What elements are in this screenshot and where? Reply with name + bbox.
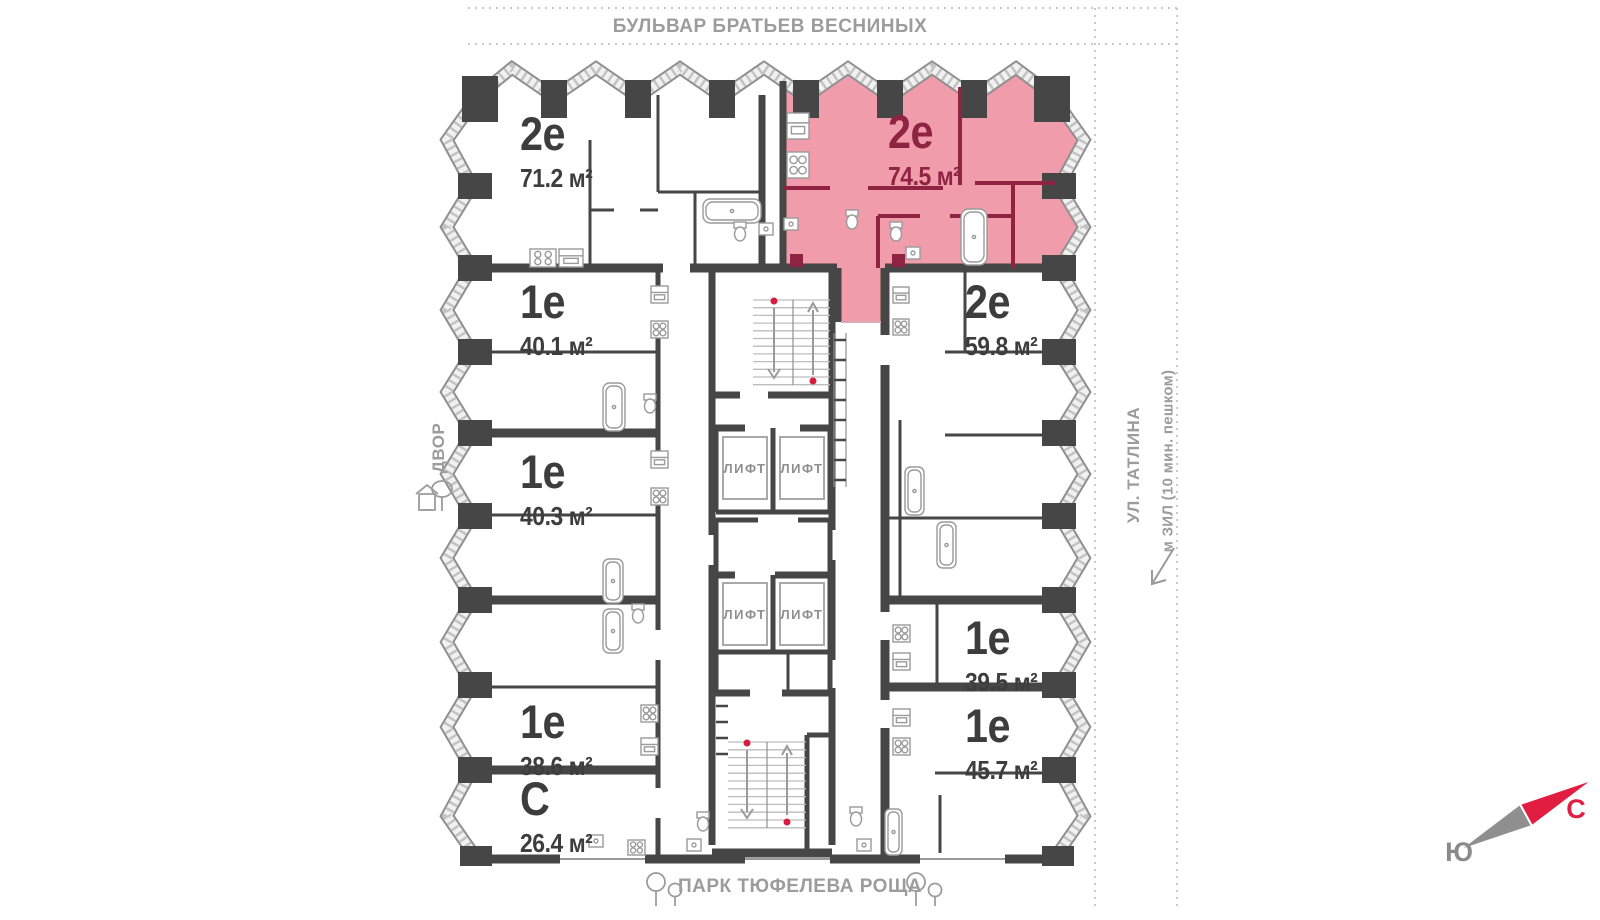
street-label-top: БУЛЬВАР БРАТЬЕВ ВЕСНИНЫХ xyxy=(613,16,928,38)
toilet-icon xyxy=(846,210,858,229)
apartment-label-2e-59[interactable]: 2е 59.8 м² xyxy=(965,278,1037,362)
apartment-type: С xyxy=(520,775,592,822)
fridge-icon xyxy=(893,709,910,726)
apartment-type: 1е xyxy=(520,698,592,745)
elevator-label: ЛИФТ xyxy=(780,461,823,476)
fridge-icon xyxy=(787,113,809,139)
elevator-label: ЛИФТ xyxy=(723,461,766,476)
toilet-icon xyxy=(644,394,656,413)
apartment-label-1e-40-1[interactable]: 1е 40.1 м² xyxy=(520,278,592,362)
metro-walk-arrow-icon xyxy=(1152,548,1174,584)
apartment-area: 45.7 м² xyxy=(965,755,1037,786)
fridge-icon xyxy=(893,653,910,670)
apartment-label-c-26[interactable]: С 26.4 м² xyxy=(520,775,592,859)
compass-south-label: Ю xyxy=(1445,837,1473,867)
stove-icon xyxy=(651,321,668,338)
apartment-type: 1е xyxy=(520,278,592,325)
compass: С Ю xyxy=(1445,779,1594,867)
sink-icon xyxy=(857,839,871,851)
stove-icon xyxy=(893,319,909,335)
apartment-label-2e-74-selected[interactable]: 2е 74.5 м² xyxy=(888,108,960,192)
street-label-right: УЛ. ТАТЛИНА xyxy=(1124,407,1144,523)
apartment-label-1e-40-3[interactable]: 1е 40.3 м² xyxy=(520,448,592,532)
bathtub-icon xyxy=(937,522,956,568)
sink-icon xyxy=(906,247,920,259)
staircase-upper xyxy=(753,298,830,386)
compass-north-label: С xyxy=(1566,794,1586,824)
sink-icon xyxy=(784,218,798,230)
elevator-label: ЛИФТ xyxy=(780,607,823,622)
apartment-area: 74.5 м² xyxy=(888,161,960,192)
sink-icon xyxy=(759,223,773,235)
fridge-icon xyxy=(651,286,668,303)
bathtub-icon xyxy=(603,383,625,431)
stove-icon xyxy=(628,840,645,855)
sink-icon xyxy=(687,839,701,851)
metro-label-right: м ЗИЛ (10 мин. пешком) xyxy=(1160,370,1177,553)
stove-icon xyxy=(651,488,668,505)
toilet-icon xyxy=(697,812,709,831)
floorplan-svg: ЛИФТ ЛИФТ ЛИФТ ЛИФТ С Ю xyxy=(0,0,1600,920)
bathtub-icon xyxy=(603,559,623,603)
apartment-label-2e-71[interactable]: 2е 71.2 м² xyxy=(520,110,592,194)
staircase-lower xyxy=(728,740,806,829)
apartment-area: 71.2 м² xyxy=(520,163,592,194)
bathtub-icon xyxy=(885,809,902,855)
toilet-icon xyxy=(890,222,902,241)
fridge-icon xyxy=(559,249,583,267)
stove-icon xyxy=(893,738,910,755)
apartment-type: 1е xyxy=(520,448,592,495)
stove-icon xyxy=(641,705,658,722)
fridge-icon xyxy=(893,287,909,303)
apartment-label-1e-45[interactable]: 1е 45.7 м² xyxy=(965,702,1037,786)
apartment-type: 1е xyxy=(965,702,1037,749)
apartment-area: 40.3 м² xyxy=(520,501,592,532)
toilet-icon xyxy=(734,222,746,241)
apartment-area: 26.4 м² xyxy=(520,828,592,859)
apartment-type: 2е xyxy=(520,110,592,157)
toilet-icon xyxy=(850,807,862,826)
apartment-area: 39.5 м² xyxy=(965,667,1037,698)
apartment-area: 59.8 м² xyxy=(965,331,1037,362)
fridge-icon xyxy=(651,451,668,468)
bathtub-icon xyxy=(703,199,761,223)
park-label-bottom: ПАРК ТЮФЕЛЕВА РОЩА xyxy=(678,876,922,898)
apartment-type: 2е xyxy=(965,278,1037,325)
apartment-area: 40.1 м² xyxy=(520,331,592,362)
fridge-icon xyxy=(641,738,658,755)
apartment-label-1e-38[interactable]: 1е 38.6 м² xyxy=(520,698,592,782)
apartment-label-1e-39[interactable]: 1е 39.5 м² xyxy=(965,614,1037,698)
apartment-type: 2е xyxy=(888,108,960,155)
bathtub-icon xyxy=(961,209,987,265)
apartment-type: 1е xyxy=(965,614,1037,661)
stove-icon xyxy=(893,625,910,642)
stove-icon xyxy=(787,152,809,178)
stove-icon xyxy=(530,249,556,267)
elevator-label: ЛИФТ xyxy=(723,607,766,622)
yard-label-left: ДВОР xyxy=(429,423,449,474)
bathtub-icon xyxy=(905,467,924,515)
bathtub-icon xyxy=(603,609,623,653)
toilet-icon xyxy=(632,604,644,623)
floorplan-canvas: ЛИФТ ЛИФТ ЛИФТ ЛИФТ С Ю БУЛЬВАР БРАТЬЕВ … xyxy=(0,0,1600,920)
